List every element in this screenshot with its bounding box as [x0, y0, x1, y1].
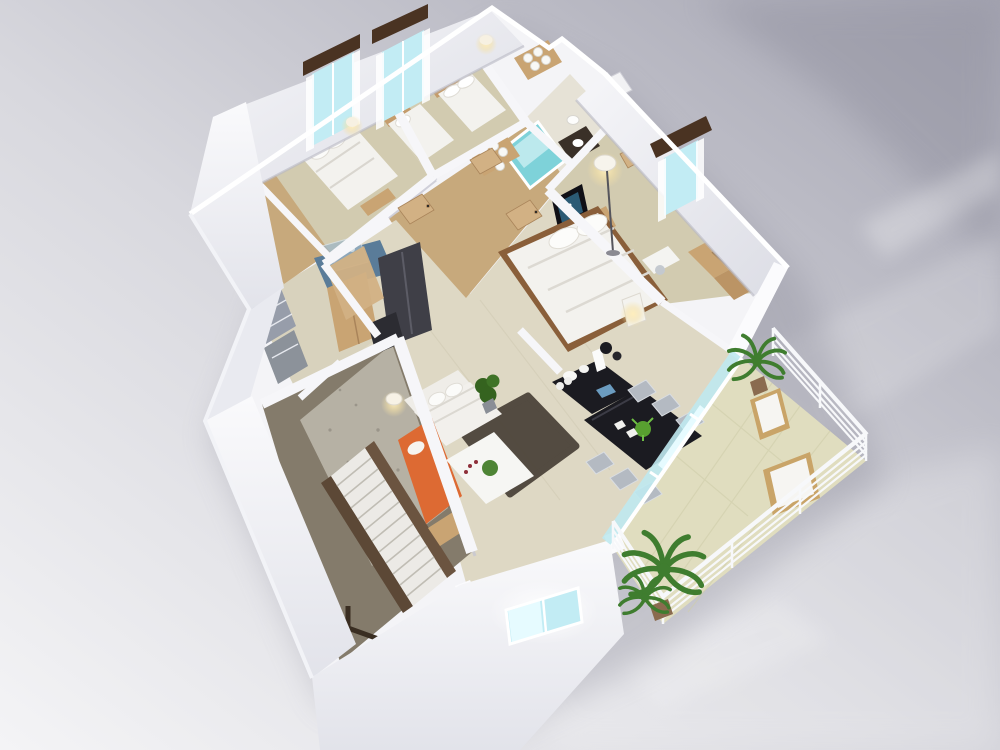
floorplan-render: [0, 0, 1000, 750]
side-table-2: [613, 352, 622, 361]
vase-2: [579, 365, 589, 373]
hall-lamp-shade: [386, 393, 402, 405]
dining-lamp-glow: [620, 301, 646, 327]
window2-curtain-l: [376, 52, 384, 130]
table-plant: [482, 460, 498, 476]
master-lamp-base: [606, 250, 620, 256]
side-table-1: [600, 342, 612, 354]
sink-bowl: [573, 139, 584, 147]
plate-1: [556, 382, 564, 390]
window2-curtain-r: [422, 28, 430, 104]
door-handle-2: [535, 211, 538, 214]
plate-2: [564, 377, 572, 385]
desk-chair: [655, 265, 665, 275]
bedroom-lamp-shade: [346, 117, 358, 127]
master-lamp-shade: [594, 155, 616, 171]
window3-curtain: [658, 158, 666, 222]
door-handle-1: [427, 205, 430, 208]
window1-curtain-l: [306, 74, 314, 152]
toilet: [567, 116, 579, 125]
closet-lamp-shade: [480, 35, 493, 45]
